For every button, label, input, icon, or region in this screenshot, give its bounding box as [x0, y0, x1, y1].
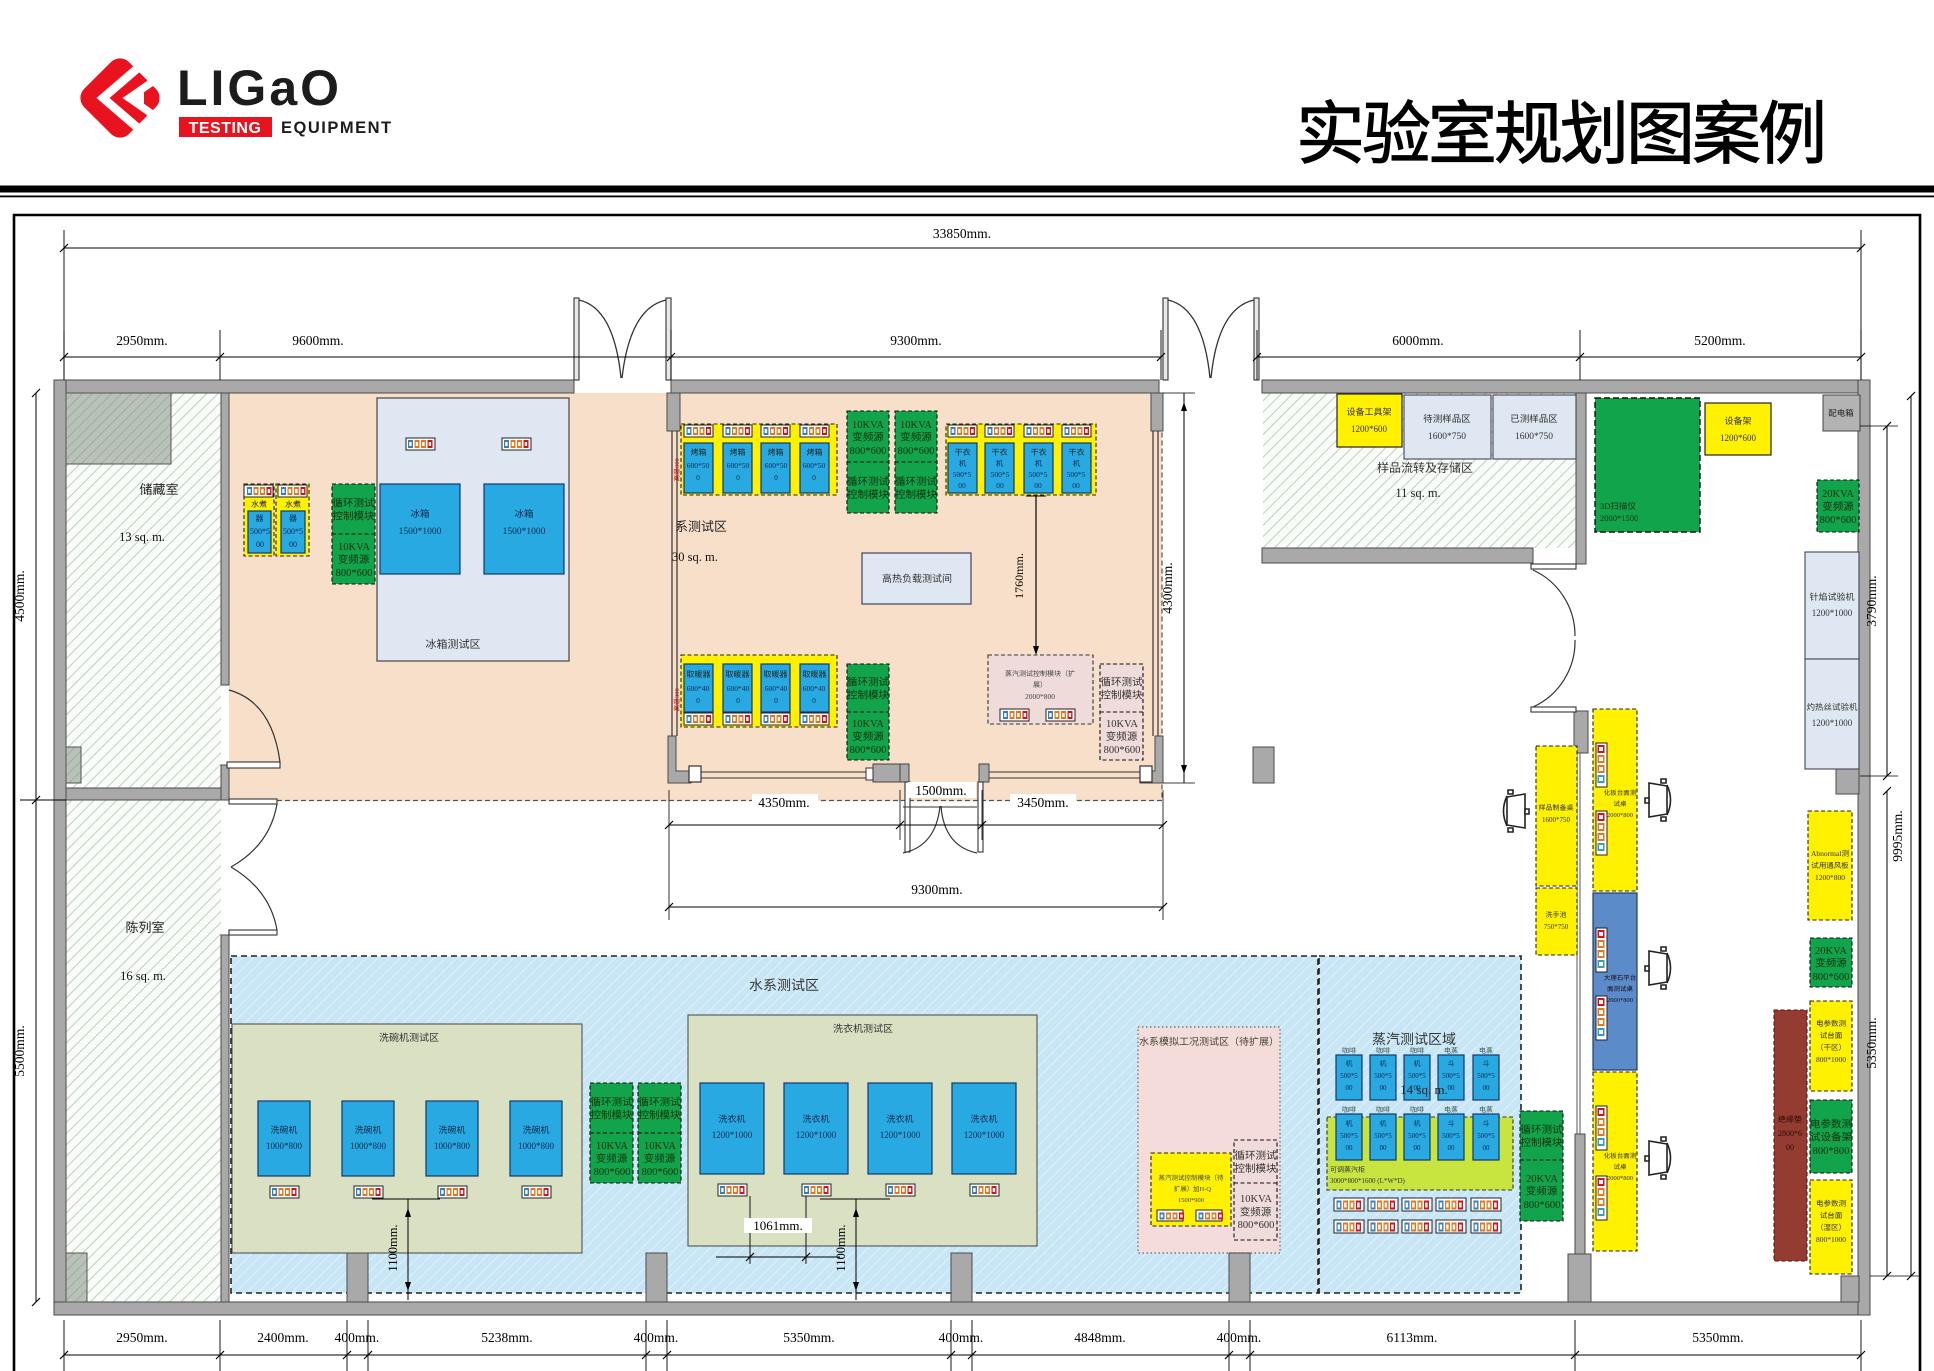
- svg-text:1000*800: 1000*800: [518, 1141, 555, 1151]
- svg-text:10KVA: 10KVA: [852, 420, 884, 431]
- svg-text:3000*800*1600 (L*W*D): 3000*800*1600 (L*W*D): [1330, 1177, 1406, 1185]
- svg-text:500*5: 500*5: [953, 470, 972, 479]
- svg-text:14 sq. m.: 14 sq. m.: [1400, 1082, 1448, 1097]
- svg-text:300: 300: [674, 688, 681, 698]
- svg-text:1200*1000: 1200*1000: [964, 1130, 1005, 1140]
- svg-text:500*5: 500*5: [1374, 1132, 1392, 1140]
- svg-text:6000mm.: 6000mm.: [1392, 333, 1443, 348]
- svg-text:0: 0: [696, 696, 700, 705]
- svg-text:500*5: 500*5: [1477, 1072, 1495, 1080]
- svg-text:2950mm.: 2950mm.: [116, 1330, 167, 1345]
- svg-text:2000*800: 2000*800: [1607, 1175, 1633, 1182]
- svg-text:16 sq. m.: 16 sq. m.: [120, 969, 166, 983]
- svg-text:800*600: 800*600: [898, 446, 935, 457]
- svg-text:9300mm.: 9300mm.: [890, 333, 941, 348]
- svg-text:4350mm.: 4350mm.: [758, 795, 809, 810]
- svg-text:500*5: 500*5: [1340, 1132, 1358, 1140]
- svg-text:800*600: 800*600: [1813, 972, 1850, 983]
- svg-text:3790mm.: 3790mm.: [1864, 575, 1879, 626]
- svg-text:800*600: 800*600: [1820, 515, 1857, 526]
- svg-text:4848mm.: 4848mm.: [1074, 1330, 1125, 1345]
- svg-text:0: 0: [774, 473, 778, 482]
- svg-text:800*600: 800*600: [642, 1167, 679, 1178]
- svg-text:0: 0: [736, 473, 740, 482]
- svg-text:1100mm.: 1100mm.: [834, 1224, 848, 1271]
- svg-text:800*600: 800*600: [336, 568, 373, 579]
- svg-text:1000*800: 1000*800: [266, 1141, 303, 1151]
- svg-text:750*750: 750*750: [1544, 923, 1569, 931]
- svg-text:11 sq. m.: 11 sq. m.: [1395, 486, 1440, 500]
- svg-text:00: 00: [1034, 481, 1042, 490]
- svg-text:500*5: 500*5: [1029, 470, 1048, 479]
- svg-text:600*50: 600*50: [727, 461, 750, 470]
- svg-text:1200*1000: 1200*1000: [880, 1130, 921, 1140]
- svg-text:10KVA: 10KVA: [644, 1141, 676, 1152]
- svg-text:EQUIPMENT: EQUIPMENT: [281, 119, 393, 137]
- svg-text:500*5: 500*5: [1340, 1072, 1358, 1080]
- svg-text:400mm.: 400mm.: [335, 1330, 380, 1345]
- svg-text:5350mm.: 5350mm.: [783, 1330, 834, 1345]
- svg-text:1061mm.: 1061mm.: [753, 1218, 802, 1233]
- svg-text:3450mm.: 3450mm.: [1017, 795, 1068, 810]
- svg-text:800*600: 800*600: [850, 446, 887, 457]
- svg-text:500*5: 500*5: [1374, 1072, 1392, 1080]
- svg-text:600*40: 600*40: [765, 684, 788, 693]
- svg-text:800*1000: 800*1000: [1816, 1055, 1846, 1064]
- svg-text:00: 00: [958, 481, 966, 490]
- svg-text:1200*1000: 1200*1000: [1812, 608, 1853, 618]
- svg-text:5500mm.: 5500mm.: [12, 1025, 27, 1076]
- svg-text:800*1000: 800*1000: [1816, 1235, 1846, 1244]
- svg-text:1200*600: 1200*600: [1720, 433, 1757, 443]
- svg-text:00: 00: [1448, 1144, 1456, 1152]
- svg-text:5350mm.: 5350mm.: [1692, 1330, 1743, 1345]
- svg-text:600*50: 600*50: [765, 461, 788, 470]
- svg-text:600*50: 600*50: [803, 461, 826, 470]
- svg-text:10KVA: 10KVA: [1240, 1194, 1272, 1205]
- svg-text:500*5: 500*5: [1067, 470, 1086, 479]
- svg-text:2400mm.: 2400mm.: [257, 1330, 308, 1345]
- svg-text:00: 00: [1346, 1084, 1354, 1092]
- svg-text:600*50: 600*50: [687, 461, 710, 470]
- svg-text:00: 00: [1414, 1144, 1422, 1152]
- svg-text:Abnormal: Abnormal: [1811, 849, 1841, 858]
- svg-text:10KVA: 10KVA: [338, 542, 370, 553]
- svg-text:1500mm.: 1500mm.: [915, 783, 966, 798]
- svg-text:0: 0: [812, 696, 816, 705]
- svg-text:TESTING: TESTING: [189, 120, 262, 137]
- svg-text:00: 00: [256, 540, 264, 549]
- svg-text:00: 00: [1448, 1084, 1456, 1092]
- svg-text:600*40: 600*40: [803, 684, 826, 693]
- svg-text:0: 0: [736, 696, 740, 705]
- svg-text:1760mm.: 1760mm.: [1012, 553, 1026, 599]
- svg-text:1600*750: 1600*750: [1515, 432, 1553, 442]
- svg-text:2000*800: 2000*800: [1607, 812, 1633, 819]
- svg-text:500*5: 500*5: [991, 470, 1010, 479]
- svg-text:1200*600: 1200*600: [1351, 424, 1388, 434]
- svg-text:800*600: 800*600: [1104, 745, 1141, 756]
- svg-text:5238mm.: 5238mm.: [481, 1330, 532, 1345]
- svg-text:10KVA: 10KVA: [596, 1141, 628, 1152]
- svg-text:1000*800: 1000*800: [434, 1141, 471, 1151]
- svg-text:加H-Q: 加H-Q: [1193, 1184, 1211, 1193]
- svg-text:9300mm.: 9300mm.: [911, 882, 962, 897]
- svg-text:00: 00: [1483, 1084, 1491, 1092]
- svg-text:00: 00: [289, 540, 297, 549]
- svg-text:2800*6: 2800*6: [1778, 1129, 1802, 1138]
- svg-text:10KVA: 10KVA: [900, 420, 932, 431]
- svg-text:800*600: 800*600: [594, 1167, 631, 1178]
- svg-text:1200*800: 1200*800: [1815, 873, 1845, 882]
- svg-text:1100mm.: 1100mm.: [386, 1224, 400, 1271]
- svg-text:5200mm.: 5200mm.: [1694, 333, 1745, 348]
- svg-text:1200*1000: 1200*1000: [796, 1130, 837, 1140]
- svg-text:500*5: 500*5: [1408, 1072, 1426, 1080]
- svg-text:00: 00: [1786, 1143, 1794, 1152]
- svg-text:400mm.: 400mm.: [634, 1330, 679, 1345]
- svg-text:400mm.: 400mm.: [1217, 1330, 1262, 1345]
- svg-text:600*40: 600*40: [687, 684, 710, 693]
- svg-text:10KVA: 10KVA: [1106, 719, 1138, 730]
- svg-text:500*5: 500*5: [1408, 1132, 1426, 1140]
- svg-text:2000*800: 2000*800: [1025, 692, 1055, 701]
- svg-text:9995mm.: 9995mm.: [1890, 810, 1905, 861]
- svg-text:6113mm.: 6113mm.: [1387, 1330, 1438, 1345]
- svg-text:00: 00: [996, 481, 1004, 490]
- svg-text:3D: 3D: [1600, 501, 1610, 511]
- svg-text:2950mm.: 2950mm.: [116, 333, 167, 348]
- svg-text:800*800: 800*800: [1813, 1146, 1850, 1157]
- svg-text:0: 0: [774, 696, 778, 705]
- svg-text:400mm.: 400mm.: [939, 1330, 984, 1345]
- svg-text:800*600: 800*600: [1524, 1200, 1561, 1211]
- svg-text:0: 0: [696, 473, 700, 482]
- svg-text:33850mm.: 33850mm.: [933, 226, 991, 241]
- svg-text:30 sq. m.: 30 sq. m.: [672, 550, 718, 564]
- svg-text:1600*750: 1600*750: [1428, 432, 1466, 442]
- svg-text:500*5: 500*5: [1442, 1072, 1460, 1080]
- svg-text:500*5: 500*5: [250, 527, 270, 536]
- svg-text:1200*1000: 1200*1000: [712, 1130, 753, 1140]
- svg-text:2000*800: 2000*800: [1607, 997, 1633, 1004]
- svg-text:00: 00: [1346, 1144, 1354, 1152]
- svg-text:1200*1000: 1200*1000: [1812, 718, 1853, 728]
- svg-text:LIGaO: LIGaO: [177, 60, 342, 116]
- svg-text:1600*750: 1600*750: [1542, 816, 1571, 824]
- svg-text:300: 300: [674, 458, 681, 468]
- svg-text:2000*1500: 2000*1500: [1600, 513, 1638, 523]
- svg-text:1000*800: 1000*800: [350, 1141, 387, 1151]
- svg-text:00: 00: [1072, 481, 1080, 490]
- svg-text:800*600: 800*600: [1238, 1220, 1275, 1231]
- svg-text:500*5: 500*5: [283, 527, 303, 536]
- svg-text:800*600: 800*600: [850, 745, 887, 756]
- svg-text:20KVA: 20KVA: [1822, 489, 1854, 500]
- svg-text:20KVA: 20KVA: [1526, 1174, 1558, 1185]
- svg-text:1500*1000: 1500*1000: [399, 527, 442, 537]
- svg-text:00: 00: [1380, 1084, 1388, 1092]
- svg-text:20KVA: 20KVA: [1815, 946, 1847, 957]
- svg-text:500*5: 500*5: [1477, 1132, 1495, 1140]
- svg-text:9600mm.: 9600mm.: [292, 333, 343, 348]
- svg-text:1500*900: 1500*900: [1178, 1197, 1204, 1204]
- svg-text:5350mm.: 5350mm.: [1864, 1017, 1879, 1068]
- svg-text:00: 00: [1483, 1144, 1491, 1152]
- svg-text:13 sq. m.: 13 sq. m.: [119, 530, 165, 544]
- svg-text:4300mm.: 4300mm.: [1160, 562, 1175, 613]
- svg-text:10KVA: 10KVA: [852, 719, 884, 730]
- svg-text:1500*1000: 1500*1000: [503, 527, 546, 537]
- svg-text:4500mm.: 4500mm.: [12, 570, 27, 621]
- svg-text:00: 00: [1380, 1144, 1388, 1152]
- svg-text:500*5: 500*5: [1442, 1132, 1460, 1140]
- svg-text:0: 0: [812, 473, 816, 482]
- svg-text:600*40: 600*40: [727, 684, 750, 693]
